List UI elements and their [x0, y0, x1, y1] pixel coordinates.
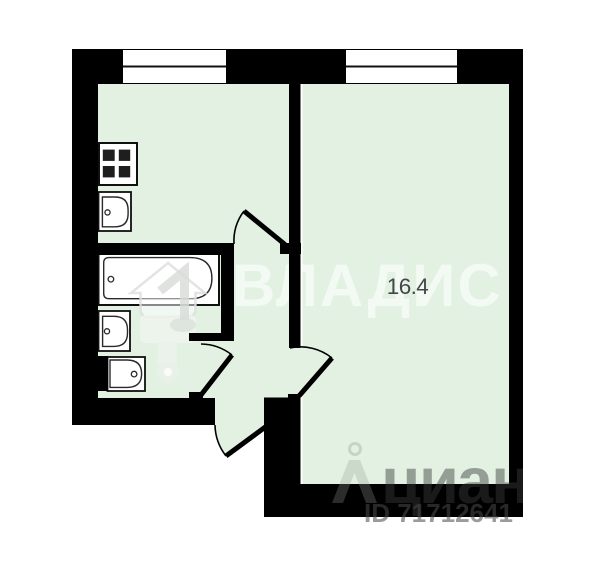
svg-text:16.4: 16.4 [387, 274, 428, 299]
svg-text:ВЛАДИС: ВЛАДИС [232, 252, 503, 319]
svg-text:ID 71712641: ID 71712641 [364, 498, 513, 528]
